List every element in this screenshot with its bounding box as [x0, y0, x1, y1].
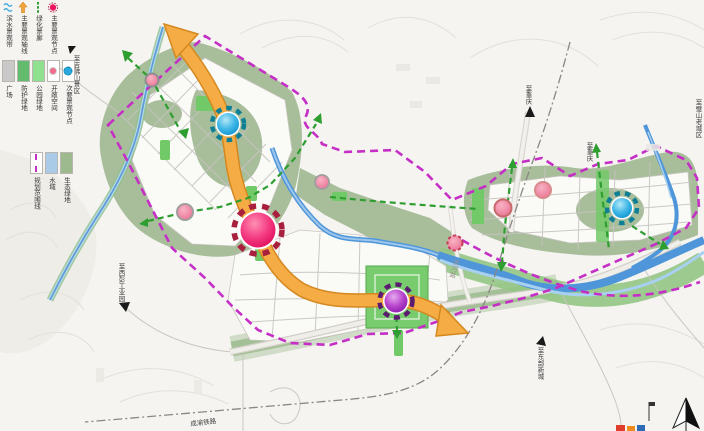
- legend-item-green-corridor: 绿化景廊: [32, 2, 44, 41]
- arrow-to-east-newtown: [536, 336, 546, 346]
- red-node-circle-icon: [48, 2, 58, 13]
- legend-item-main-node: 主要景观节点: [47, 2, 59, 54]
- legend-label: 公园绿地: [35, 85, 42, 111]
- partial-logo: [616, 425, 645, 431]
- protective-green-swatch: [17, 60, 30, 82]
- road-label-to-chongqing-2: 至重庆: [585, 142, 592, 162]
- legend-item-open-space: 开敞空间: [47, 60, 59, 111]
- arrow-to-chongqing: [525, 106, 535, 117]
- legend-label: 主要景观节点: [50, 15, 57, 54]
- legend-label: 防护绿地: [20, 85, 27, 111]
- legend: 滨水景观带 主要景观轴线 绿化景廊 主要景观节点 广场 防护: [2, 2, 77, 210]
- open-space-swatch: [47, 60, 60, 82]
- legend-line-items: 滨水景观带 主要景观轴线 绿化景廊 主要景观节点: [2, 2, 77, 54]
- secondary-node-swatch: [62, 60, 75, 82]
- north-arrow-icon: [649, 398, 699, 431]
- legend-label: 水域: [48, 177, 55, 190]
- legend-label: 主要景观轴线: [20, 15, 27, 54]
- boundary-swatch: [30, 152, 43, 174]
- legend-label: 开敞空间: [50, 85, 57, 111]
- road-label-to-xipeng: 至西彭工业园: [117, 263, 124, 302]
- planning-map-canvas: 滨水景观带 主要景观轴线 绿化景廊 主要景观节点 广场 防护: [0, 0, 704, 431]
- legend-label: 生态绿地: [63, 177, 70, 203]
- legend-item-main-axis: 主要景观轴线: [17, 2, 29, 54]
- map-drawing: [0, 0, 704, 431]
- legend-item-water-area: 水域: [45, 152, 57, 190]
- legend-item-waterfront-belt: 滨水景观带: [2, 2, 14, 48]
- legend-item-eco-green: 生态绿地: [60, 152, 72, 203]
- legend-label: 绿化景廊: [35, 15, 42, 41]
- legend-label: 规划范围线: [33, 177, 40, 210]
- legend-item-protective-green: 防护绿地: [17, 60, 29, 111]
- road-label-to-bishan-old-town: 至璧山老城区: [694, 99, 701, 138]
- road-label-to-chongqing-1: 至重庆: [524, 85, 531, 105]
- main-node-pink: [234, 206, 282, 254]
- road-label-to-east-newtown: 至东部新城: [536, 347, 543, 380]
- legend-label: 次要景观节点: [65, 85, 72, 124]
- green-dashed-corridor-icon: [33, 2, 43, 13]
- legend-area-items: 规划范围线 水域 生态绿地: [30, 152, 77, 210]
- eco-green-swatch: [60, 152, 73, 174]
- wavy-water-line-icon: [3, 2, 13, 13]
- legend-item-boundary: 规划范围线: [30, 152, 42, 210]
- park-green-swatch: [32, 60, 45, 82]
- legend-label: 广场: [5, 85, 12, 98]
- legend-label: 滨水景观带: [5, 15, 12, 48]
- legend-item-park-green: 公园绿地: [32, 60, 44, 111]
- plaza-swatch: [2, 60, 15, 82]
- water-swatch: [45, 152, 58, 174]
- legend-item-secondary-node: 次要景观节点: [62, 60, 74, 124]
- legend-swatch-items: 广场 防护绿地 公园绿地 开敞空间 次要景观节点: [2, 60, 77, 124]
- legend-item-plaza: 广场: [2, 60, 14, 98]
- orange-axis-arrow-icon: [18, 2, 28, 13]
